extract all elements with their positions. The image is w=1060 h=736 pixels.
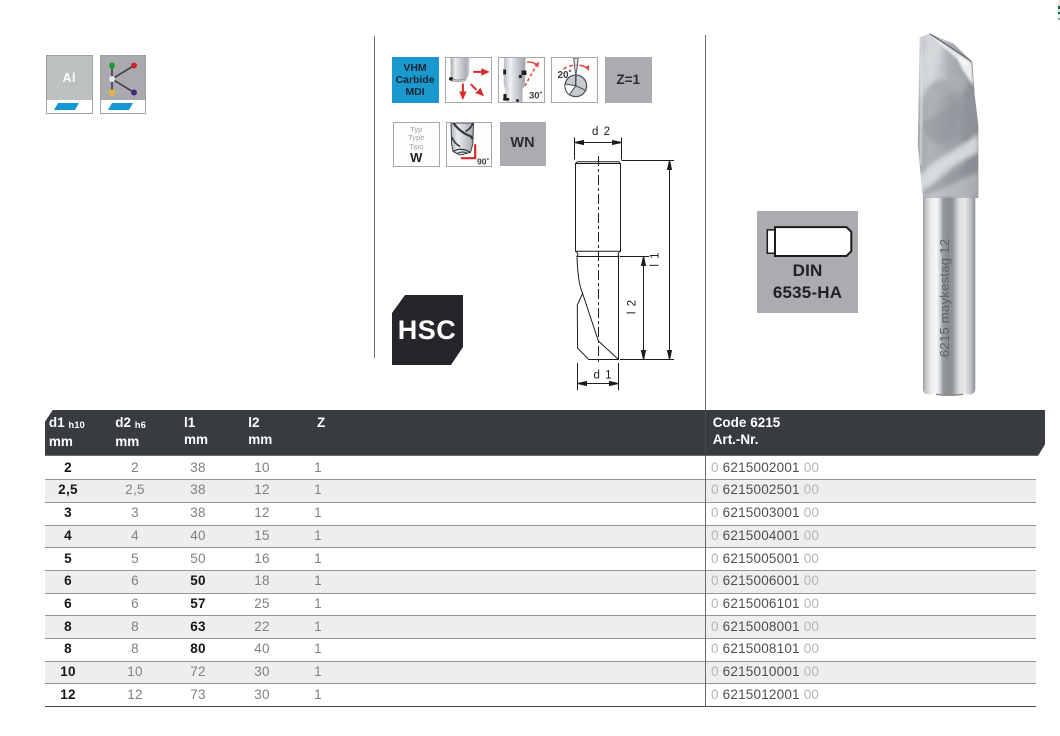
svg-text:d 2: d 2 [592, 126, 611, 138]
svg-text:20˚: 20˚ [558, 69, 572, 81]
svg-text:30˚: 30˚ [529, 90, 543, 101]
svg-text:90˚: 90˚ [477, 156, 489, 166]
svg-text:6215 maykestag 12: 6215 maykestag 12 [937, 239, 952, 358]
svg-text:d 1: d 1 [594, 370, 613, 382]
svg-text:l 1: l 1 [650, 251, 662, 266]
svg-text:HSC: HSC [398, 315, 457, 345]
svg-text:l 2: l 2 [627, 299, 639, 314]
